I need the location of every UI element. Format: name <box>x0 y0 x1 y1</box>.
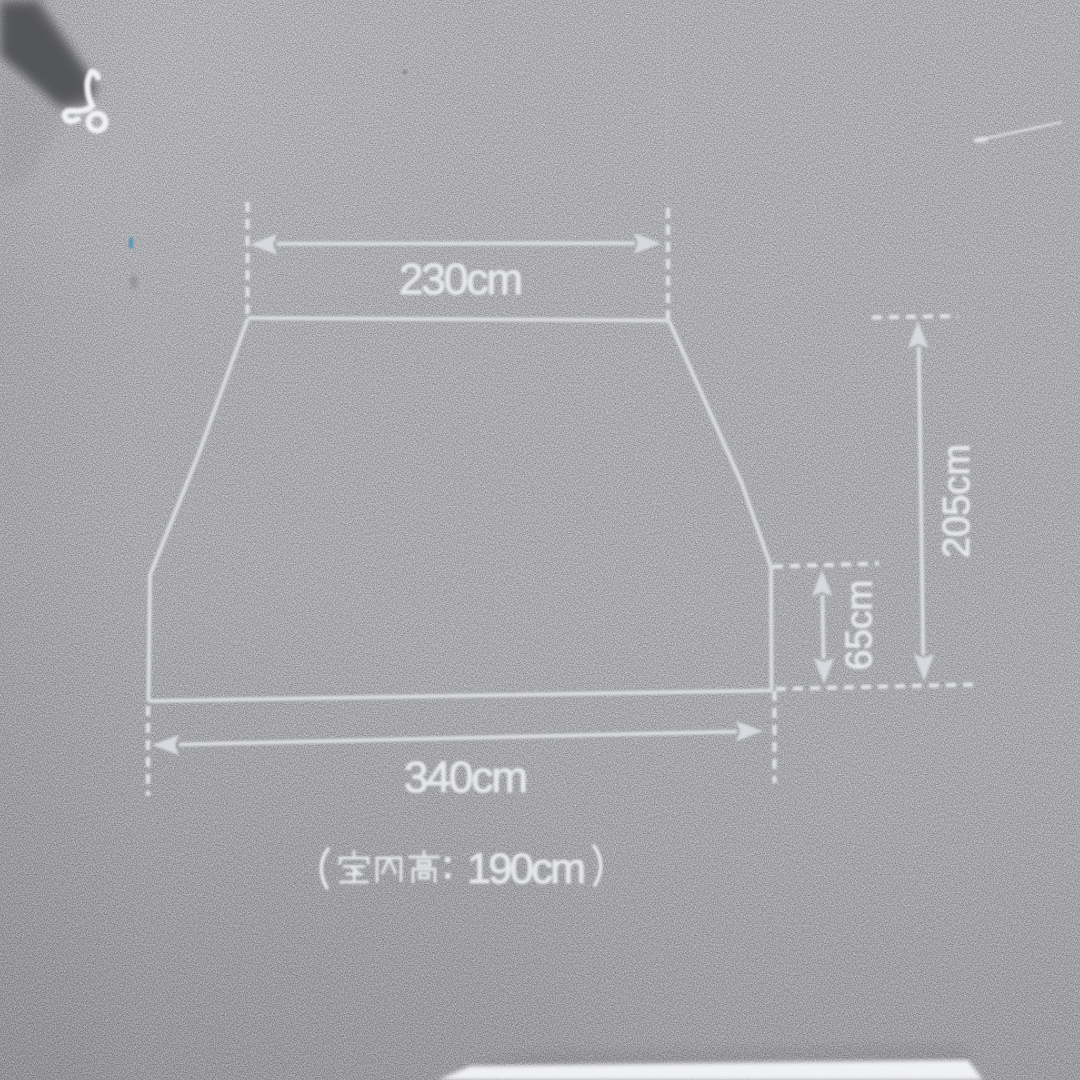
svg-text:190cm: 190cm <box>467 845 584 893</box>
svg-text:340cm: 340cm <box>404 753 526 802</box>
svg-text:65cm: 65cm <box>839 580 880 670</box>
svg-text:205cm: 205cm <box>936 444 978 558</box>
svg-text:230cm: 230cm <box>399 255 521 304</box>
